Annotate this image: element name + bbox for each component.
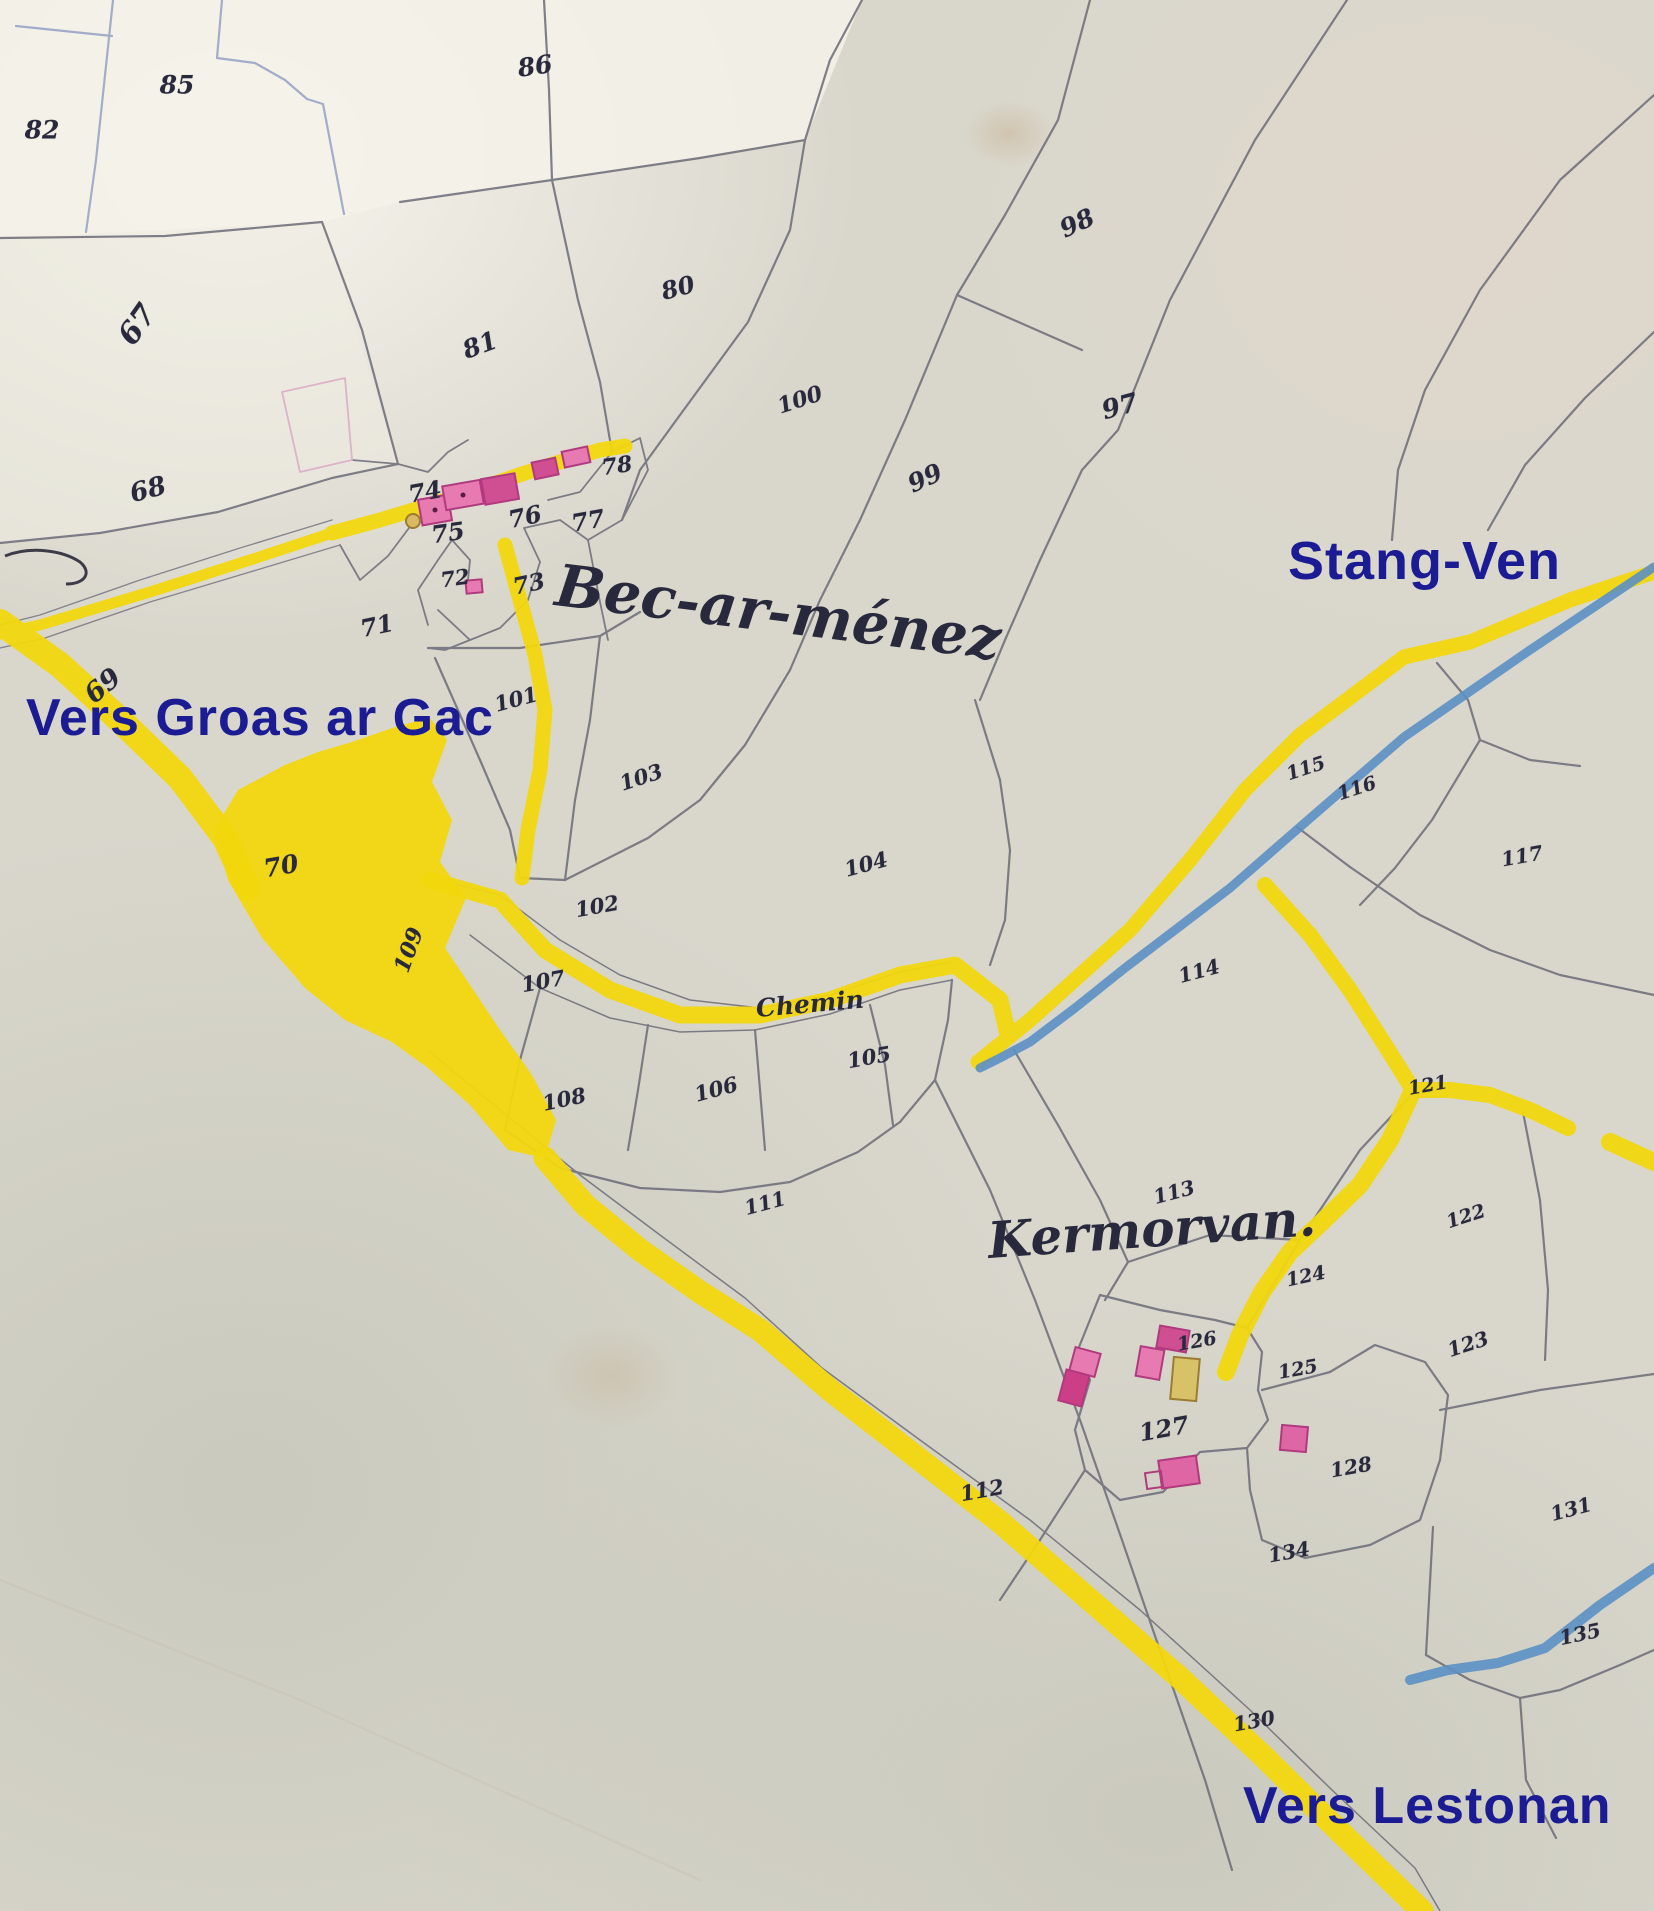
road-branch-east-end [1610, 1142, 1654, 1162]
road-chemin [430, 880, 1008, 1035]
parcel-number-71: 71 [358, 611, 396, 641]
modern-label-vers-lestonan: Vers Lestonan [1243, 1780, 1611, 1832]
parcel-number-77: 77 [569, 506, 606, 535]
parcel-number-73: 73 [511, 569, 547, 598]
road-pond-area [214, 718, 556, 1158]
parcel-number-75: 75 [430, 519, 466, 547]
cadastral-map: 8285866768818098100979974757677787273716… [0, 0, 1654, 1911]
road-highlights [0, 446, 1654, 1911]
parcel-number-74: 74 [406, 477, 443, 506]
parcel-number-76: 76 [506, 502, 544, 532]
parcel-number-134: 134 [1267, 1539, 1312, 1566]
well [406, 514, 420, 528]
stream-southeast [1410, 1568, 1654, 1680]
tan-building [1170, 1357, 1200, 1401]
modern-label-vers-groas-ar-gac: Vers Groas ar Gac [26, 692, 494, 744]
parcel-number-86: 86 [516, 51, 554, 81]
parcel-number-130: 130 [1232, 1708, 1277, 1735]
parcel-number-70: 70 [262, 851, 301, 882]
parcel-number-82: 82 [25, 118, 60, 143]
paper-light-zones [0, 0, 862, 543]
parcel-number-128: 128 [1329, 1454, 1374, 1481]
map-drawing [0, 0, 1654, 1911]
stream-stang-ven [980, 567, 1654, 1068]
parcel-number-78: 78 [600, 453, 633, 479]
parcel-number-117: 117 [1500, 843, 1545, 870]
road-west [0, 533, 332, 634]
road-main-upper [0, 622, 248, 888]
parcel-number-85: 85 [160, 73, 195, 98]
modern-label-stang-ven: Stang-Ven [1288, 534, 1561, 588]
parcel-number-72: 72 [439, 566, 471, 591]
ink-squiggle [5, 550, 86, 584]
